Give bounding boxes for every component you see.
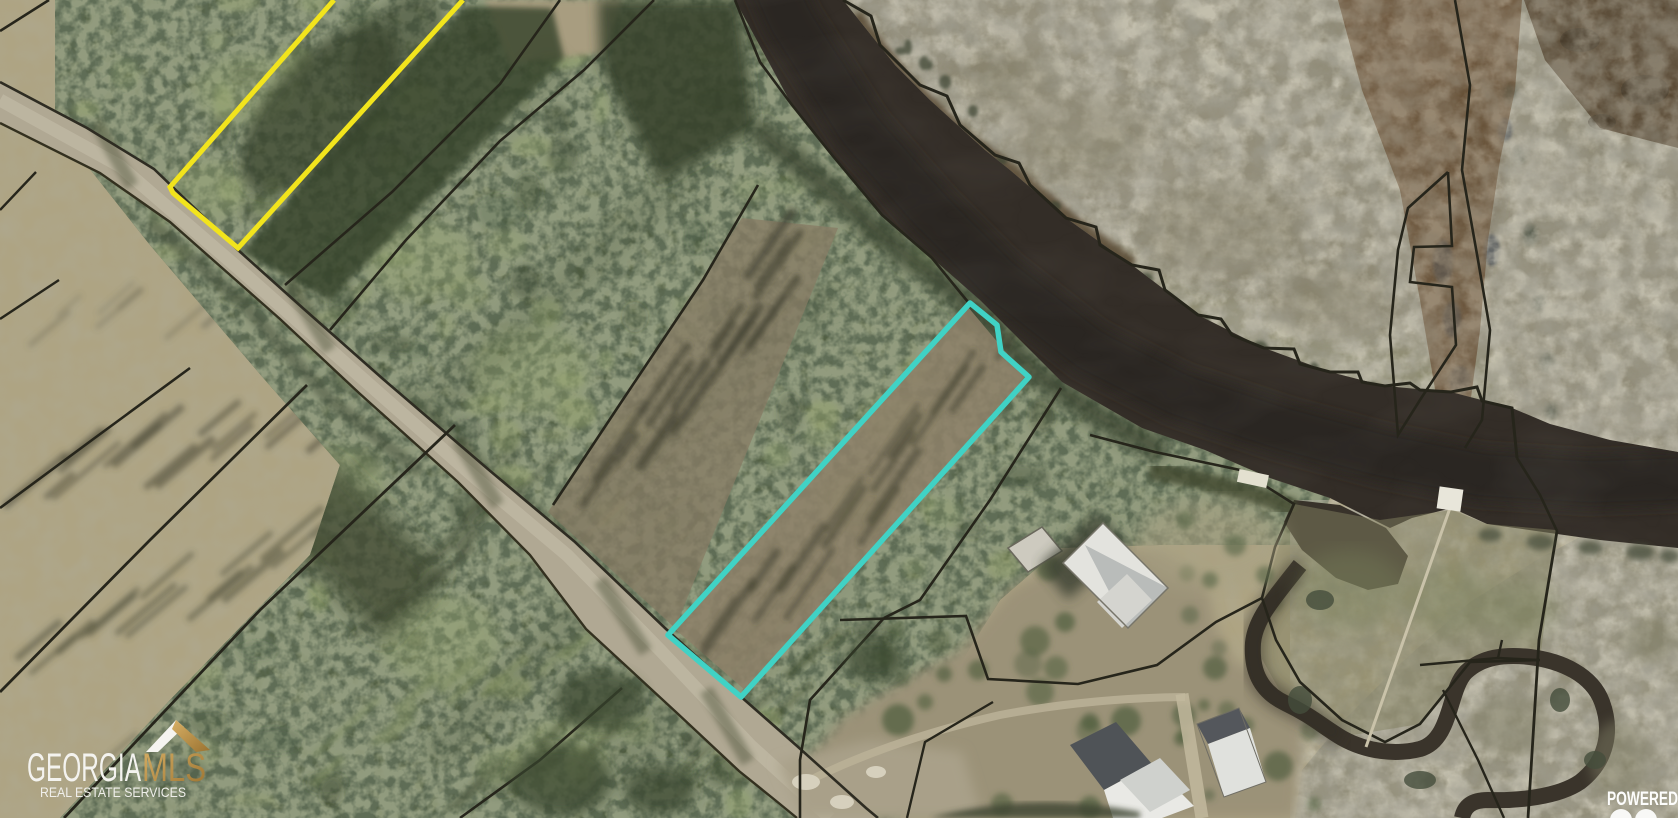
svg-text:POWERED: POWERED xyxy=(1607,789,1678,810)
svg-text:REAL ESTATE SERVICES: REAL ESTATE SERVICES xyxy=(40,784,186,800)
